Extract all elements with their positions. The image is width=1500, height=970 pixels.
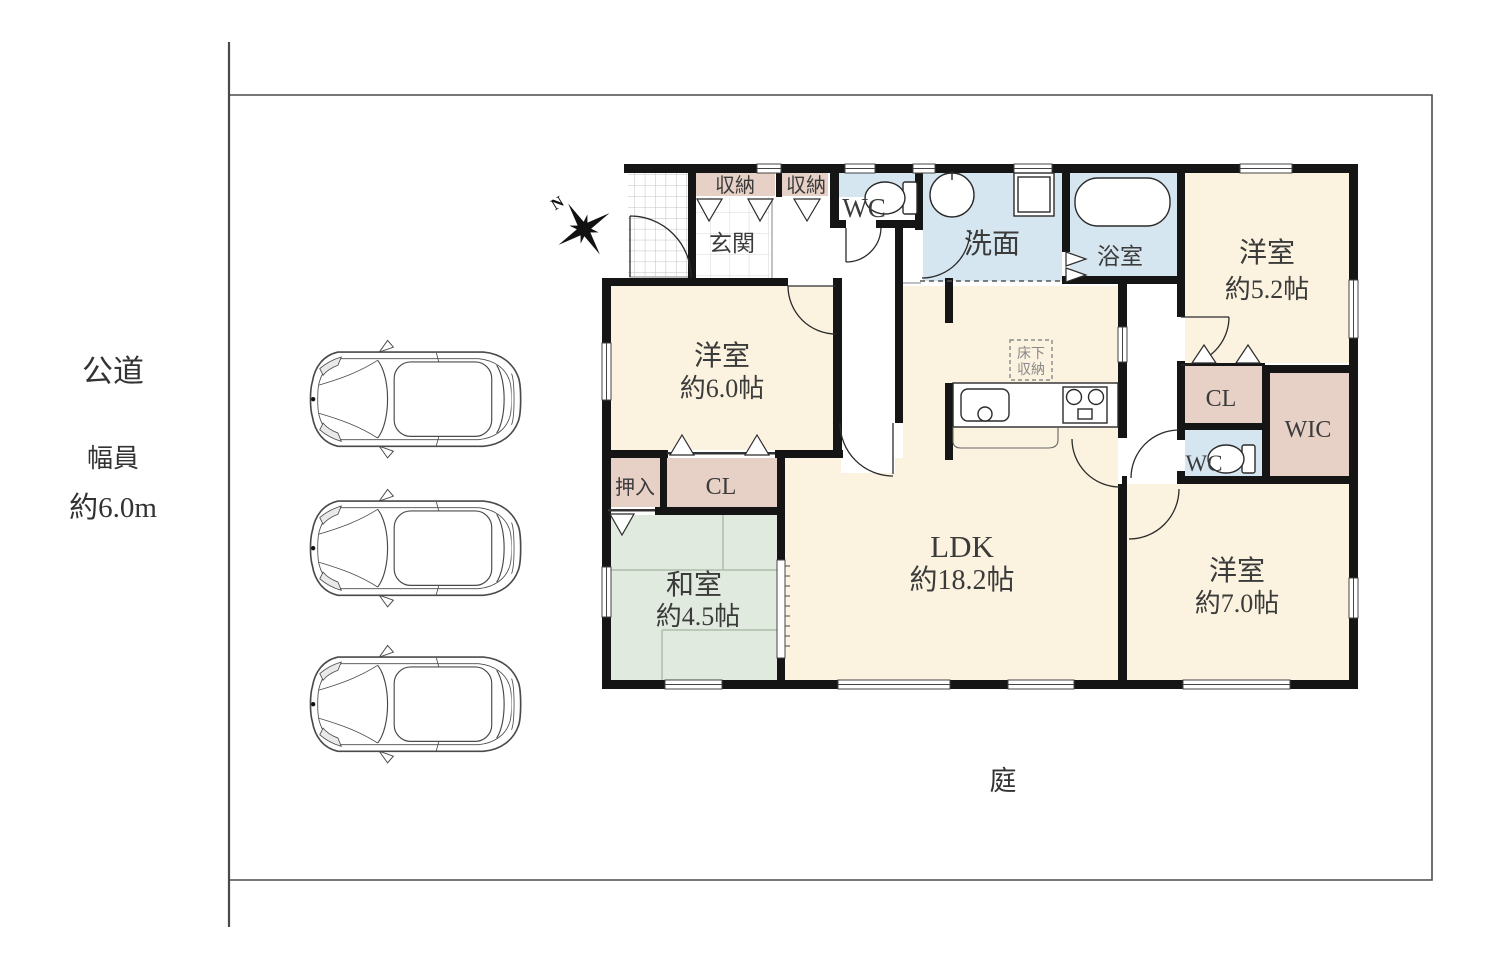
compass-star-inner-icon [566,211,602,247]
western-70-size: 約7.0帖 [1195,589,1280,618]
underfloor-label-2: 収納 [1017,362,1045,378]
hall-east [1127,284,1177,476]
parking-area [310,340,520,762]
ldk-size: 約18.2帖 [909,564,1014,596]
road-width-value: 約6.0m [69,491,157,524]
car-top-view-1 [310,340,520,457]
washing-machine-icon [1014,173,1054,216]
western-60-size: 約6.0帖 [680,374,765,403]
north-compass: N [543,188,626,271]
underfloor-label-1: 床下 [1017,346,1045,362]
road-width-label: 幅員 [87,444,139,473]
washroom-label: 洗面 [964,228,1020,260]
floor-plan-page: N [0,0,1500,970]
western-52-size: 約5.2帖 [1225,275,1310,304]
bathroom-label: 浴室 [1097,244,1143,269]
wc-south-label: WC [1185,451,1222,476]
storage-b-label: 収納 [786,174,826,197]
car-top-view-2 [310,489,520,606]
car-top-view-3 [310,645,520,762]
bathtub-icon [1075,178,1170,226]
wic-label: WIC [1285,417,1332,443]
ldk-label: LDK [930,529,994,564]
entrance-label: 玄関 [709,231,755,256]
closet-south-label: CL [706,474,737,500]
western-60-label: 洋室 [694,340,750,372]
japanese-room-size: 約4.5帖 [656,602,741,631]
garden-label: 庭 [990,766,1017,796]
japanese-room-label: 和室 [666,569,722,601]
oshiire-label: 押入 [615,476,655,499]
compass-north-label: N [548,193,567,214]
stove-icon [1063,387,1107,423]
western-52-label: 洋室 [1239,237,1295,269]
road-label: 公道 [82,354,144,389]
closet-north-label: CL [1206,386,1237,412]
wc-north-label: WC [842,193,886,223]
western-70-label: 洋室 [1209,555,1265,587]
storage-a-label: 収納 [715,174,755,197]
hall-center [841,283,895,473]
floor-plan-canvas: N [0,0,1500,970]
